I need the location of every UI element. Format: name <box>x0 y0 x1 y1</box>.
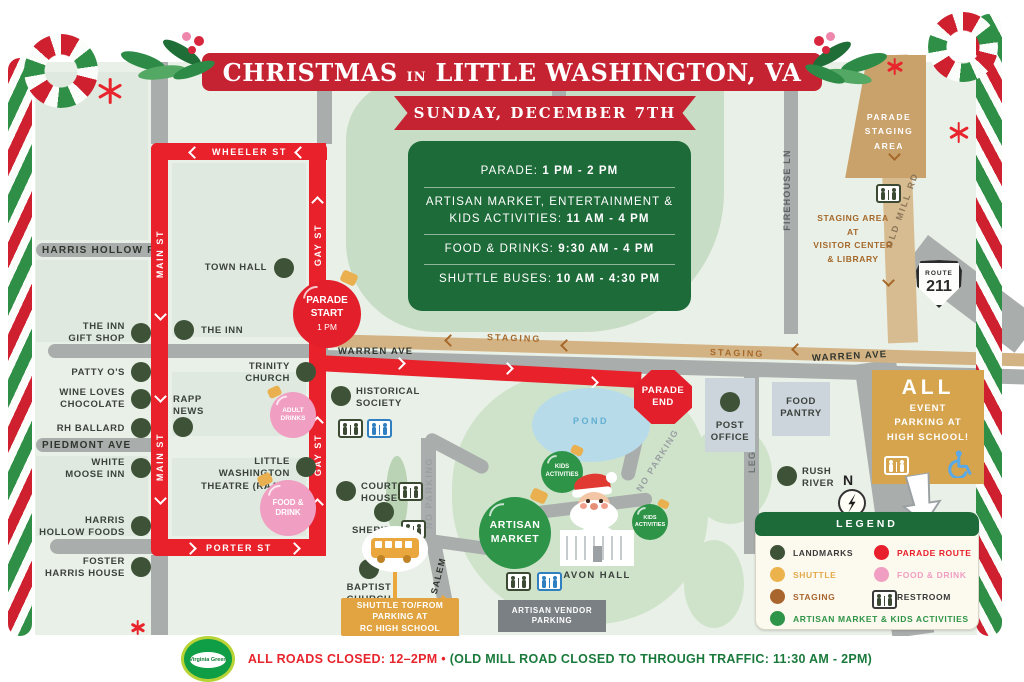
inn-gift-shop-label: THE INN GIFT SHOP <box>40 321 125 346</box>
legend-dot-landmarks <box>770 545 785 560</box>
restroom-icon <box>537 572 562 591</box>
staging-note: STAGING AREA AT VISITOR CENTER & LIBRARY <box>800 212 906 266</box>
shuttle-bus-icon <box>362 526 428 572</box>
food-pantry-label: FOOD PANTRY <box>773 396 829 421</box>
road-closure-notice: ALL ROADS CLOSED: 12–2PM • (OLD MILL ROA… <box>240 652 880 666</box>
marker-parade-start: PARADE START 1 PM <box>293 280 361 348</box>
park-area <box>684 540 744 628</box>
candy-cane-border-left <box>8 58 32 636</box>
staging-label-west: STAGING <box>487 332 542 344</box>
city-block <box>172 163 306 337</box>
vendor-parking-label: ARTISAN VENDOR PARKING <box>498 606 606 627</box>
foster-harris-house-label: FOSTER HARRIS HOUSE <box>30 556 125 581</box>
restroom-icon <box>338 419 363 438</box>
porter-label: PORTER ST <box>206 543 272 553</box>
wine-loves-chocolate-label: WINE LOVES CHOCOLATE <box>35 387 125 412</box>
rh-ballard-dot <box>131 418 151 438</box>
restroom-icon <box>398 482 423 501</box>
closure-green: (OLD MILL ROAD CLOSED TO THROUGH TRAFFIC… <box>450 652 872 666</box>
title-banner: CHRISTMAS IN LITTLE WASHINGTON, VA <box>202 53 822 91</box>
post-office-dot <box>720 392 740 412</box>
theatre-dot <box>296 457 316 477</box>
patty-os-dot <box>131 362 151 382</box>
footer-bar: Virginia Green ALL ROADS CLOSED: 12–2PM … <box>0 636 1024 682</box>
the-inn-label: THE INN <box>201 325 243 337</box>
event-map-poster: { "banner": {"title_left": "CHRISTMAS", … <box>0 0 1024 682</box>
court-house-dot <box>336 481 356 501</box>
patty-os-label: PATTY O'S <box>40 367 125 379</box>
parking-rest-label: EVENT PARKING AT HIGH SCHOOL! <box>872 402 984 445</box>
historical-society-dot <box>331 386 351 406</box>
date-ribbon: SUNDAY, DECEMBER 7TH <box>394 96 696 130</box>
restroom-icon <box>367 419 392 438</box>
legend-label-shuttle: SHUTTLE <box>793 570 836 580</box>
pond-label: POND <box>532 416 650 428</box>
piedmont-label: PIEDMONT AVE <box>42 440 131 451</box>
trinity-church-dot <box>296 362 316 382</box>
legend-header: LEGEND <box>755 512 979 536</box>
the-inn-dot <box>174 320 194 340</box>
parade-start-time: 1 PM <box>317 322 337 333</box>
compass-n-label: N <box>843 472 854 488</box>
snowflake-icon <box>948 122 969 143</box>
rapp-news-label: RAPP NEWS <box>173 394 204 419</box>
holly-decoration-right <box>800 26 900 102</box>
rapp-news-dot <box>173 417 193 437</box>
legend-label-staging: STAGING <box>793 592 835 602</box>
schedule-row-food: FOOD & DRINKS: 9:30 AM - 4 PM <box>424 234 675 264</box>
legend-dot-parade-route <box>874 545 889 560</box>
route-num: 211 <box>919 278 959 296</box>
road-main-south-stub <box>151 555 168 635</box>
marker-parade-end: PARADE END <box>634 370 692 424</box>
legend-dot-artisan <box>770 611 785 626</box>
sheriff-dot <box>374 502 394 522</box>
title-text: CHRISTMAS IN LITTLE WASHINGTON, VA <box>223 58 802 87</box>
legend-dot-shuttle <box>770 567 785 582</box>
vendor-parking-block: ARTISAN VENDOR PARKING <box>498 600 606 632</box>
post-office-label: POST OFFICE <box>702 420 758 445</box>
legend: LEGEND LANDMARKS SHUTTLE STAGING ARTISAN… <box>755 512 979 630</box>
marker-adult-drinks: ADULT DRINKS <box>270 392 316 438</box>
town-hall-label: TOWN HALL <box>192 262 267 274</box>
inn-gift-shop-dot <box>131 323 151 343</box>
main-label-upper: MAIN ST <box>155 224 165 284</box>
date-text: SUNDAY, DECEMBER 7TH <box>414 104 677 122</box>
restroom-icon <box>884 456 909 475</box>
legend-restroom-icon <box>872 590 897 609</box>
route-word: ROUTE <box>919 270 959 277</box>
wheeler-label: WHEELER ST <box>212 147 287 157</box>
firehouse-label: FIREHOUSE LN <box>782 145 792 235</box>
restroom-icon <box>506 572 531 591</box>
shuttle-note-label: SHUTTLE TO/FROM PARKING AT RC HIGH SCHOO… <box>357 600 444 634</box>
title-in: IN <box>407 70 427 85</box>
gay-label-upper: GAY ST <box>313 215 323 275</box>
historical-society-label: HISTORICAL SOCIETY <box>356 386 420 411</box>
rush-river-dot <box>777 466 797 486</box>
harris-hollow-label: HARRIS HOLLOW RD <box>42 245 164 256</box>
schedule-row-parade: PARADE: 1 PM - 2 PM <box>424 157 675 186</box>
legend-label-landmarks: LANDMARKS <box>793 548 853 558</box>
holly-decoration-left <box>120 26 220 98</box>
restroom-icon <box>876 184 901 203</box>
virginia-green-logo: Virginia Green <box>181 636 235 682</box>
harris-hollow-foods-dot <box>131 516 151 536</box>
closure-bullet: • <box>441 652 446 666</box>
virginia-green-label: Virginia Green <box>189 657 227 663</box>
schedule-row-shuttle: SHUTTLE BUSES: 10 AM - 4:30 PM <box>424 264 675 294</box>
parking-all-label: ALL <box>872 376 984 400</box>
legend-dot-food-drink <box>874 567 889 582</box>
no-parking-west-label: NO PARKING <box>424 459 434 529</box>
pond: POND <box>532 388 650 462</box>
marker-food-drink: FOOD & DRINK <box>260 480 316 536</box>
white-moose-inn-label: WHITE MOOSE INN <box>35 457 125 482</box>
parade-staging-label: PARADE STAGING AREA <box>852 110 926 153</box>
gay-label-lower: GAY ST <box>313 425 323 485</box>
legend-label-artisan: ARTISAN MARKET & KIDS ACTIVITIES <box>793 614 969 624</box>
shuttle-connector <box>393 570 397 600</box>
wine-loves-chocolate-dot <box>131 389 151 409</box>
harris-hollow-foods-label: HARRIS HOLLOW FOODS <box>30 515 125 540</box>
candy-cane-border-right <box>976 14 1002 636</box>
avon-hall-label: AVON HALL <box>554 570 640 582</box>
legend-label-restroom: RESTROOM <box>897 592 951 602</box>
event-parking-box: ALL EVENT PARKING AT HIGH SCHOOL! <box>872 370 984 484</box>
trinity-church-label: TRINITY CHURCH <box>225 361 290 386</box>
rush-river-label: RUSH RIVER <box>802 466 834 491</box>
marker-kids-activities-2: KIDS ACTIVITIES <box>632 504 668 540</box>
foster-harris-house-dot <box>131 557 151 577</box>
rh-ballard-label: RH BALLARD <box>40 423 125 435</box>
town-hall-dot <box>274 258 294 278</box>
warren-west-label: WARREN AVE <box>338 346 413 357</box>
white-moose-inn-dot <box>131 458 151 478</box>
schedule-row-market: ARTISAN MARKET, ENTERTAINMENT & KIDS ACT… <box>424 187 675 235</box>
legend-dot-staging <box>770 589 785 604</box>
candy-cane-curl-left <box>24 34 98 108</box>
snowflake-icon <box>130 620 145 635</box>
candy-cane-curl-right <box>928 12 998 82</box>
staging-label-east: STAGING <box>710 347 765 359</box>
santa-icon <box>566 472 622 532</box>
marker-artisan-market: ARTISAN MARKET <box>479 497 551 569</box>
road-warren-west <box>48 344 328 358</box>
closure-red: ALL ROADS CLOSED: 12–2PM <box>248 652 438 666</box>
shuttle-note-box: SHUTTLE TO/FROM PARKING AT RC HIGH SCHOO… <box>341 598 459 636</box>
legend-title: LEGEND <box>836 518 898 530</box>
main-label-lower: MAIN ST <box>155 427 165 487</box>
legend-label-food-drink: FOOD & DRINK <box>897 570 967 580</box>
road-porter-west <box>50 539 154 554</box>
legend-label-parade-route: PARADE ROUTE <box>897 548 972 558</box>
schedule-box: PARADE: 1 PM - 2 PM ARTISAN MARKET, ENTE… <box>408 141 691 311</box>
wheelchair-icon <box>946 450 974 478</box>
